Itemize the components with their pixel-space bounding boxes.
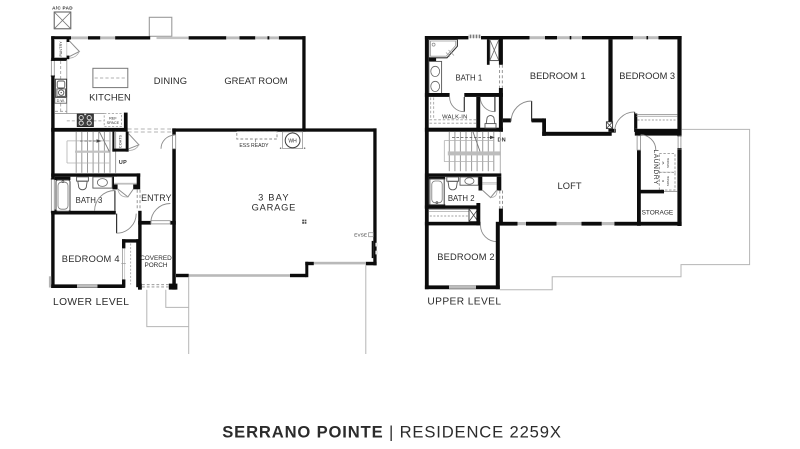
svg-text:COATS: COATS	[119, 134, 123, 148]
svg-text:DN: DN	[498, 138, 506, 144]
svg-text:WH: WH	[288, 138, 297, 144]
svg-text:SPACE: SPACE	[666, 176, 670, 186]
svg-text:UP: UP	[119, 160, 127, 166]
svg-text:LOWER LEVEL: LOWER LEVEL	[53, 297, 129, 308]
svg-text:LAUNDRY: LAUNDRY	[652, 150, 659, 186]
svg-text:BATH 1: BATH 1	[455, 74, 482, 83]
svg-text:PANTRY: PANTRY	[59, 41, 63, 57]
svg-text:KITCHEN: KITCHEN	[89, 92, 131, 103]
svg-text:ESS READY: ESS READY	[239, 143, 269, 149]
svg-text:BEDROOM 4: BEDROOM 4	[62, 254, 120, 264]
svg-text:BEDROOM 3: BEDROOM 3	[619, 71, 675, 81]
svg-text:BATH 2: BATH 2	[448, 194, 475, 203]
svg-text:EVSE: EVSE	[354, 233, 367, 238]
svg-text:BATH 3: BATH 3	[76, 196, 103, 205]
svg-text:W: W	[661, 161, 665, 164]
svg-text:ENTRY: ENTRY	[141, 193, 172, 203]
svg-text:SERRANO POINTE | RESIDENCE 2: SERRANO POINTE | RESIDENCE 2259X	[222, 422, 562, 441]
svg-text:LOFT: LOFT	[558, 181, 582, 191]
svg-text:D.W.: D.W.	[57, 99, 65, 103]
svg-text:COVERED: COVERED	[140, 255, 172, 262]
svg-text:UPPER LEVEL: UPPER LEVEL	[427, 296, 501, 307]
svg-text:DINING: DINING	[154, 75, 187, 86]
svg-text:SPACE: SPACE	[666, 158, 670, 168]
svg-text:BEDROOM 2: BEDROOM 2	[437, 252, 495, 262]
svg-text:REF: REF	[109, 116, 117, 120]
svg-text:SPACE: SPACE	[107, 121, 120, 125]
svg-text:GREAT ROOM: GREAT ROOM	[224, 75, 287, 86]
svg-text:3 BAY: 3 BAY	[258, 192, 290, 202]
svg-text:WALK-IN: WALK-IN	[442, 114, 467, 120]
svg-text:STORAGE: STORAGE	[642, 209, 674, 216]
svg-text:BEDROOM 1: BEDROOM 1	[530, 71, 586, 81]
svg-text:A/C PAD: A/C PAD	[52, 6, 73, 11]
svg-text:GARAGE: GARAGE	[252, 202, 297, 212]
svg-text:PORCH: PORCH	[144, 262, 167, 269]
